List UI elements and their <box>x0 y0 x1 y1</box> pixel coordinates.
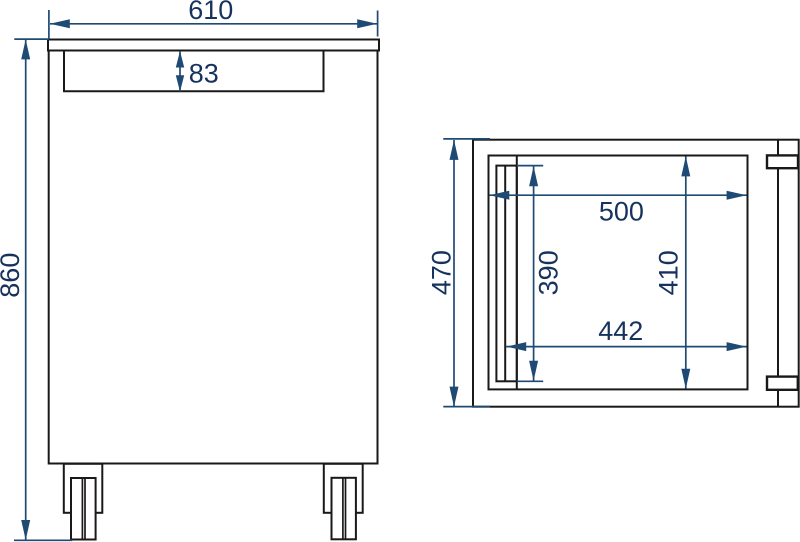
svg-text:390: 390 <box>534 250 564 295</box>
svg-text:410: 410 <box>653 250 683 295</box>
svg-text:610: 610 <box>188 0 233 25</box>
svg-text:860: 860 <box>0 253 25 298</box>
svg-text:83: 83 <box>189 58 219 88</box>
svg-text:470: 470 <box>426 250 456 295</box>
svg-text:442: 442 <box>598 316 643 346</box>
svg-text:500: 500 <box>599 196 644 226</box>
